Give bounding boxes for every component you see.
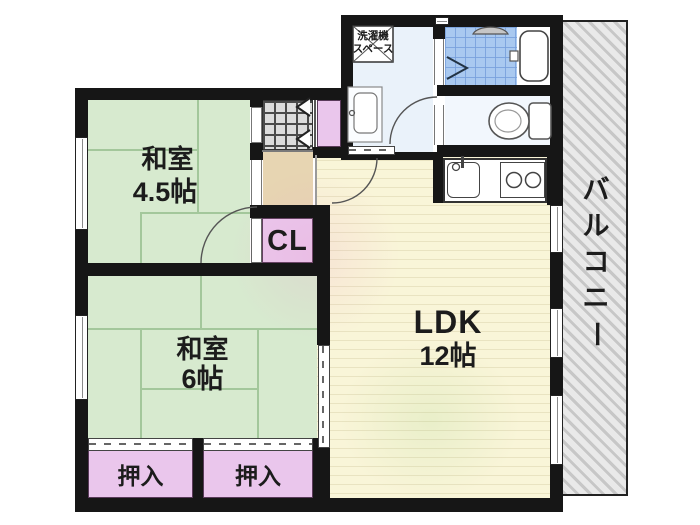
- floor-plan: 和室 4.5帖 CL LDK 12帖 和室 6帖 押入 押入 洗濯機 スペース …: [0, 0, 700, 525]
- wall-hall-cl-band: [250, 205, 330, 218]
- room-size-ldk: 12帖: [398, 341, 498, 371]
- tatami-line: [200, 276, 202, 328]
- wall-kitchen-right: [547, 148, 563, 205]
- wall-room-divider: [75, 263, 330, 276]
- wall-pillar: [250, 88, 263, 107]
- sliding-door-washroom: [348, 146, 395, 155]
- wall-bath-toilet: [437, 85, 563, 96]
- entrance-step-line: [262, 150, 313, 152]
- door-opening: [251, 160, 262, 205]
- toilet-floor: [445, 96, 550, 145]
- room-label-washitsu6: 和室: [140, 336, 265, 364]
- tatami-line: [88, 328, 317, 330]
- sliding-door-oshiire-right: [203, 438, 313, 451]
- window: [75, 315, 88, 400]
- wall-toilet-bottom: [437, 145, 563, 157]
- door-opening: [434, 39, 444, 85]
- tatami-line: [140, 212, 250, 214]
- kitchen-sink: [447, 162, 480, 198]
- door-opening: [434, 105, 444, 145]
- balcony-label: バ ル コ ニ ー: [578, 172, 614, 352]
- oshiire-right-label: 押入: [208, 462, 308, 490]
- closet-cl-label: CL: [262, 222, 313, 260]
- window: [550, 308, 563, 358]
- window: [550, 205, 563, 253]
- wall-6j-right-upper: [317, 276, 330, 345]
- sliding-door-oshiire-left: [88, 438, 193, 451]
- tatami-line: [140, 212, 142, 263]
- room-size-washitsu45: 4.5帖: [100, 177, 230, 207]
- sliding-door-6j-ldk: [318, 345, 330, 448]
- oshiire-left-label: 押入: [92, 462, 189, 490]
- window: [550, 395, 563, 465]
- wall-top-left-section: [75, 88, 341, 100]
- room-label-ldk: LDK: [398, 306, 498, 340]
- wall-right-seg: [550, 253, 563, 308]
- bathtub-area: [517, 27, 550, 85]
- window-small: [435, 17, 449, 25]
- entrance-tile: [262, 100, 313, 150]
- wall-bottom: [75, 498, 563, 512]
- shoe-cabinet: [317, 100, 341, 147]
- hallway-floor: [263, 152, 313, 205]
- bathroom-tile-floor: [445, 27, 517, 85]
- room-label-washitsu45: 和室: [105, 146, 230, 174]
- hall-ldk-line: [315, 155, 317, 205]
- laundry-label-line2: スペース: [350, 44, 396, 56]
- wall-entrance-bottom: [313, 147, 353, 158]
- window: [75, 137, 88, 230]
- wall-oshiire-pillar: [193, 438, 203, 498]
- room-size-washitsu6: 6帖: [140, 364, 265, 394]
- door-leaf: [251, 218, 262, 263]
- gas-stove: [500, 162, 545, 198]
- laundry-label-line1: 洗濯機: [352, 31, 394, 43]
- wall-top: [345, 15, 563, 27]
- wall-kitchen-left: [433, 152, 443, 203]
- door-opening: [251, 107, 262, 143]
- wall-right-seg: [550, 358, 563, 395]
- tile-cabinet-line: [314, 100, 316, 147]
- wall-right-seg: [550, 465, 563, 510]
